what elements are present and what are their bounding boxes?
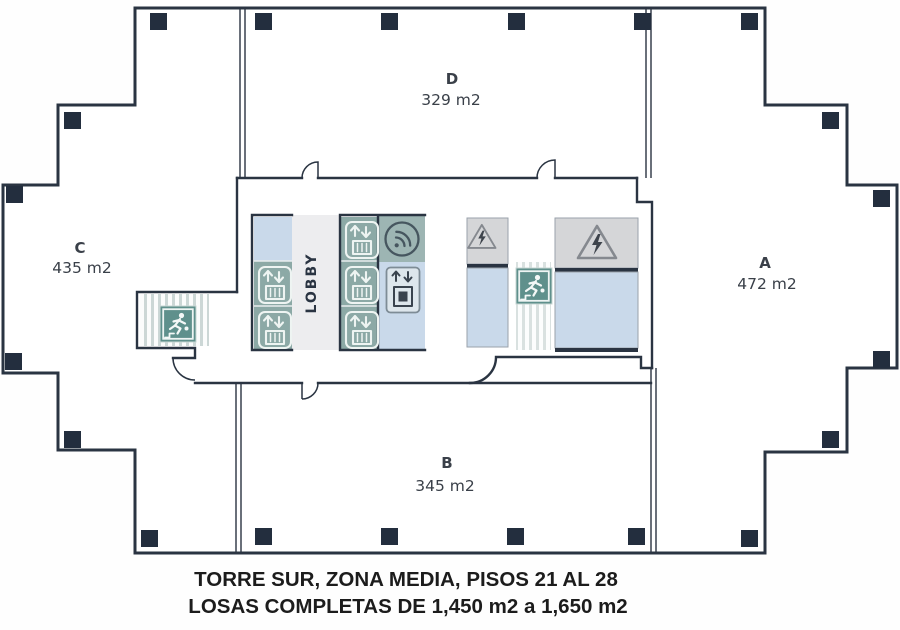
svg-text:D: D — [446, 70, 458, 88]
electrical-room-small — [467, 218, 508, 347]
svg-text:345 m2: 345 m2 — [415, 477, 474, 495]
svg-text:472 m2: 472 m2 — [737, 275, 796, 293]
caption-line-1: TORRE SUR, ZONA MEDIA, PISOS 21 AL 28 — [194, 568, 618, 591]
lobby-label: LOBBY — [304, 252, 320, 313]
svg-text:435 m2: 435 m2 — [52, 259, 111, 277]
emergency-exit-stairs-icon — [160, 306, 196, 342]
emergency-exit-stairs-icon — [516, 268, 552, 304]
svg-text:C: C — [74, 239, 85, 257]
service-elevator-icon — [387, 268, 420, 313]
floor-plan-page: LOBBY — [0, 0, 900, 630]
caption-line-2: LOSAS COMPLETAS DE 1,450 m2 a 1,650 m2 — [188, 595, 627, 618]
svg-text:A: A — [759, 254, 771, 272]
floor-plan-svg: LOBBY — [0, 0, 900, 630]
svg-text:329 m2: 329 m2 — [421, 91, 480, 109]
svg-text:B: B — [441, 454, 452, 472]
